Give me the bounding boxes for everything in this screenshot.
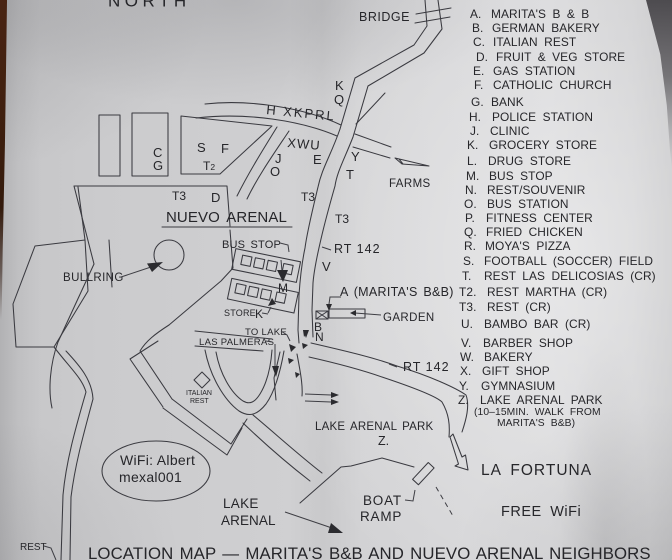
svg-text:C.ITALIAN REST: C.ITALIAN REST <box>473 35 576 49</box>
svg-text:A.MARITA'S B & B: A.MARITA'S B & B <box>470 7 589 21</box>
svg-text:H.POLICE STATION: H.POLICE STATION <box>469 110 593 124</box>
svg-text:LAKE ARENAL PARK: LAKE ARENAL PARK <box>315 421 434 433</box>
svg-text:O: O <box>270 164 280 179</box>
svg-text:REST: REST <box>20 542 47 553</box>
svg-text:ARENAL: ARENAL <box>221 513 276 528</box>
svg-text:G: G <box>153 158 163 173</box>
svg-text:LAKE: LAKE <box>223 496 259 511</box>
svg-text:BULLRING: BULLRING <box>63 272 124 284</box>
svg-text:Y.GYMNASIUM: Y.GYMNASIUM <box>459 379 555 393</box>
svg-text:Z.LAKE ARENAL PARK: Z.LAKE ARENAL PARK <box>458 393 603 407</box>
svg-text:E.GAS STATION: E.GAS STATION <box>473 64 575 78</box>
svg-text:mexal001: mexal001 <box>119 469 182 485</box>
svg-text:P.FITNESS CENTER: P.FITNESS CENTER <box>465 211 593 225</box>
svg-text:FARMS: FARMS <box>389 178 431 190</box>
svg-text:Q.FRIED CHICKEN: Q.FRIED CHICKEN <box>464 225 583 239</box>
svg-text:BRIDGE: BRIDGE <box>359 10 410 24</box>
svg-text:T3: T3 <box>301 190 315 204</box>
svg-text:H XKPRL: H XKPRL <box>266 102 337 124</box>
svg-text:STORE: STORE <box>224 308 256 318</box>
svg-text:Z.: Z. <box>378 434 389 448</box>
svg-text:GARDEN: GARDEN <box>383 312 435 324</box>
svg-text:T2.REST MARTHA (CR): T2.REST MARTHA (CR) <box>459 285 607 299</box>
svg-text:N.REST/SOUVENIR: N.REST/SOUVENIR <box>465 183 586 197</box>
svg-text:K.GROCERY STORE: K.GROCERY STORE <box>467 138 597 152</box>
svg-text:W.BAKERY: W.BAKERY <box>460 350 533 364</box>
svg-text:E: E <box>313 152 322 167</box>
svg-text:G.BANK: G.BANK <box>471 95 524 109</box>
svg-text:J.CLINIC: J.CLINIC <box>470 124 530 138</box>
svg-text:(10–15MIN. WALK FROM: (10–15MIN. WALK FROM <box>474 407 601 418</box>
svg-text:XWU: XWU <box>287 135 322 153</box>
svg-text:REST: REST <box>190 398 209 405</box>
svg-text:A (MARITA'S B&B): A (MARITA'S B&B) <box>340 285 454 299</box>
svg-text:U.BAMBO BAR (CR): U.BAMBO BAR (CR) <box>461 317 591 331</box>
svg-text:S.FOOTBALL (SOCCER) FIELD: S.FOOTBALL (SOCCER) FIELD <box>463 254 653 268</box>
svg-text:B.GERMAN BAKERY: B.GERMAN BAKERY <box>472 21 600 35</box>
svg-text:X.GIFT SHOP: X.GIFT SHOP <box>460 364 550 378</box>
svg-text:V: V <box>322 259 331 274</box>
svg-text:BOAT: BOAT <box>363 493 402 508</box>
svg-text:Y: Y <box>351 149 360 164</box>
svg-text:RAMP: RAMP <box>360 509 402 524</box>
svg-text:N: N <box>315 330 324 344</box>
svg-text:D: D <box>211 190 220 205</box>
svg-text:F: F <box>221 141 229 156</box>
svg-text:T3.REST (CR): T3.REST (CR) <box>459 300 551 314</box>
svg-text:K: K <box>335 78 344 93</box>
svg-text:RT 142: RT 142 <box>334 242 381 256</box>
svg-text:LA FORTUNA: LA FORTUNA <box>481 462 592 479</box>
svg-text:T: T <box>346 167 354 182</box>
svg-text:S: S <box>197 140 206 155</box>
svg-text:F.CATHOLIC CHURCH: F.CATHOLIC CHURCH <box>474 78 612 92</box>
svg-text:T2: T2 <box>203 159 215 173</box>
svg-text:V.BARBER SHOP: V.BARBER SHOP <box>461 336 573 350</box>
svg-text:MARITA'S B&B): MARITA'S B&B) <box>497 418 575 429</box>
svg-text:T.REST LAS DELICOSIAS (CR): T.REST LAS DELICOSIAS (CR) <box>462 269 656 283</box>
svg-text:FREE WiFi: FREE WiFi <box>501 504 581 520</box>
svg-text:Q: Q <box>334 92 344 107</box>
svg-text:M: M <box>278 281 288 295</box>
svg-text:O.BUS STATION: O.BUS STATION <box>464 197 569 211</box>
svg-text:NORTH: NORTH <box>108 0 191 11</box>
svg-text:WiFi: Albert: WiFi: Albert <box>120 452 195 468</box>
svg-text:LOCATION MAP — MARITA'S B&B AN: LOCATION MAP — MARITA'S B&B AND NUEVO AR… <box>88 544 651 560</box>
svg-text:D.FRUIT & VEG STORE: D.FRUIT & VEG STORE <box>476 50 625 64</box>
svg-text:T3: T3 <box>172 189 186 203</box>
svg-text:R.MOYA'S PIZZA: R.MOYA'S PIZZA <box>464 239 571 253</box>
svg-text:K: K <box>255 307 263 321</box>
svg-text:T3: T3 <box>335 212 349 226</box>
svg-text:ITALIAN: ITALIAN <box>186 390 212 397</box>
svg-text:M.BUS STOP: M.BUS STOP <box>466 169 553 183</box>
svg-text:NUEVO ARENAL: NUEVO ARENAL <box>166 209 287 226</box>
svg-text:RT 142: RT 142 <box>403 360 450 374</box>
svg-text:BUS STOP: BUS STOP <box>222 239 281 251</box>
svg-text:L.DRUG STORE: L.DRUG STORE <box>467 154 571 168</box>
svg-text:LAS PALMERAS: LAS PALMERAS <box>199 337 274 348</box>
